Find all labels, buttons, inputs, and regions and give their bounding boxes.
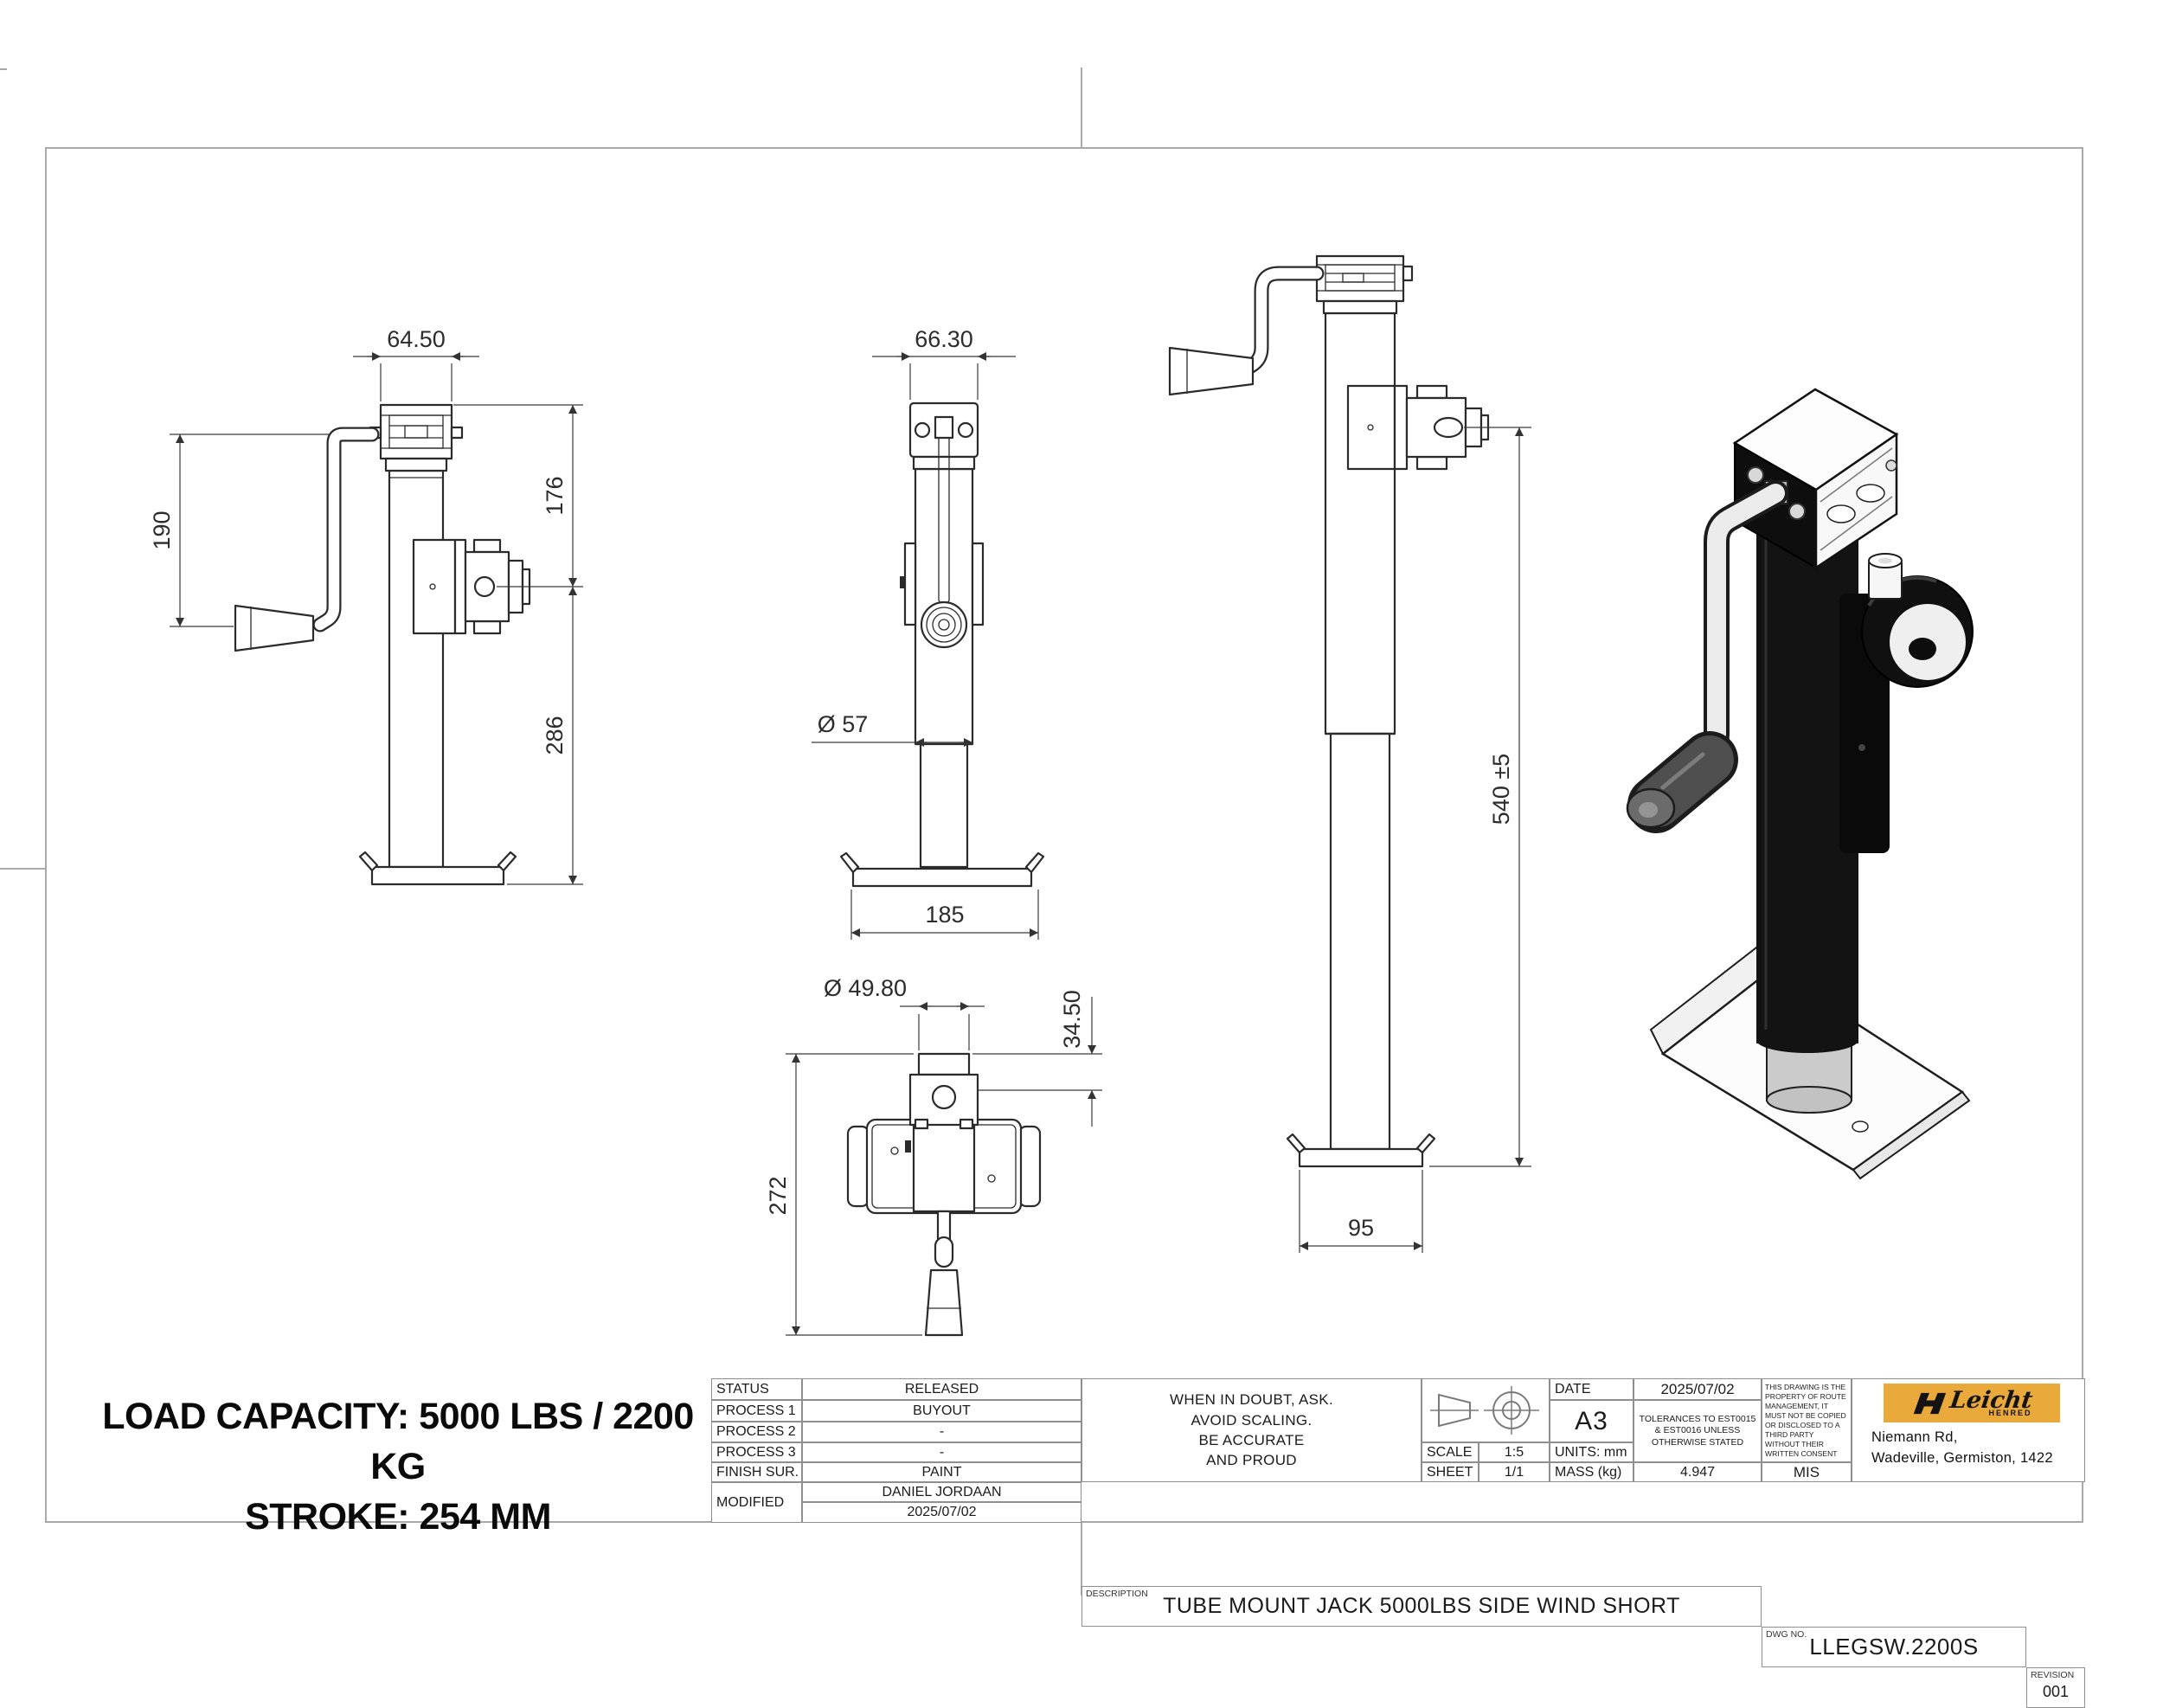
dim-side-upper-height: 176 xyxy=(542,476,568,515)
revision-cell: REVISION 001 xyxy=(2026,1667,2085,1708)
sheet-value: 1/1 xyxy=(1479,1462,1550,1482)
dim-side-lower-height: 286 xyxy=(542,716,568,754)
motto-line-3: BE ACCURATE xyxy=(1198,1430,1304,1450)
drawing-sheet: 64.50 xyxy=(0,0,2163,1672)
process3-value: - xyxy=(802,1442,1081,1462)
view-isometric-render xyxy=(1627,389,1973,1178)
stroke-line: STROKE: 254 MM xyxy=(95,1492,701,1542)
description-label: DESCRIPTION xyxy=(1086,1589,1148,1599)
dim-top-tube-diameter: Ø 49.80 xyxy=(824,975,907,1001)
process1-value: BUYOUT xyxy=(802,1400,1081,1422)
dwg-no-label: DWG NO. xyxy=(1766,1629,1807,1640)
date-value: 2025/07/02 xyxy=(1633,1378,1762,1400)
bracket-bolt xyxy=(1748,467,1763,483)
leicht-henred-logo: Leicht HENRED xyxy=(1884,1384,2060,1422)
view-top: Ø 49.80 34.50 272 xyxy=(765,975,1102,1335)
process2-value: - xyxy=(802,1422,1081,1442)
title-block: STATUS PROCESS 1 PROCESS 2 PROCESS 3 FIN… xyxy=(711,1378,2085,1523)
finish-label: FINISH SUR. xyxy=(711,1462,802,1482)
brand-name: Leicht xyxy=(1948,1389,2034,1412)
sheet-label: SHEET xyxy=(1422,1462,1479,1482)
scale-value: 1:5 xyxy=(1479,1442,1550,1462)
view-front: 66.30 Ø 57 18 xyxy=(812,326,1043,940)
description-cell: DESCRIPTION TUBE MOUNT JACK 5000LBS SIDE… xyxy=(1081,1586,1762,1627)
modified-label: MODIFIED xyxy=(711,1482,802,1523)
modified-date: 2025/07/02 xyxy=(802,1502,1081,1523)
description-value: TUBE MOUNT JACK 5000LBS SIDE WIND SHORT xyxy=(1163,1594,1680,1619)
motto-line-2: AVOID SCALING. xyxy=(1191,1410,1313,1430)
dim-side-handle-length: 190 xyxy=(149,510,175,549)
motto-box: WHEN IN DOUBT, ASK. AVOID SCALING. BE AC… xyxy=(1081,1378,1422,1482)
ownership-note: THIS DRAWING IS THE PROPERTY OF ROUTE MA… xyxy=(1762,1378,1852,1462)
modified-by: DANIEL JORDAAN xyxy=(802,1482,1081,1502)
mass-label: MASS (kg) xyxy=(1550,1462,1633,1482)
process1-label: PROCESS 1 xyxy=(711,1400,802,1422)
process2-label: PROCESS 2 xyxy=(711,1422,802,1442)
company-address-line1: Niemann Rd, xyxy=(1871,1429,1958,1446)
third-angle-projection-icon xyxy=(1428,1384,1543,1437)
dwg-no-value: LLEGSW.2200S xyxy=(1809,1634,1978,1660)
dim-top-pin-offset: 34.50 xyxy=(1059,990,1085,1049)
logo-h-icon xyxy=(1912,1390,1947,1417)
bracket-bolt xyxy=(1789,504,1805,519)
load-capacity-line: LOAD CAPACITY: 5000 LBS / 2200 KG xyxy=(95,1391,701,1492)
dim-side-top-width: 64.50 xyxy=(387,326,446,352)
company-address-line2: Wadeville, Germiston, 1422 xyxy=(1871,1450,2053,1467)
status-value: RELEASED xyxy=(802,1378,1081,1400)
revision-value: 001 xyxy=(2043,1683,2069,1701)
motto-line-1: WHEN IN DOUBT, ASK. xyxy=(1170,1390,1333,1409)
tolerances-note: TOLERANCES TO EST0015 & EST0016 UNLESS O… xyxy=(1633,1400,1762,1462)
scale-label: SCALE xyxy=(1422,1442,1479,1462)
view-side-retracted: 64.50 xyxy=(149,326,583,884)
mis-cell: MIS xyxy=(1762,1462,1852,1482)
load-capacity-note: LOAD CAPACITY: 5000 LBS / 2200 KG STROKE… xyxy=(95,1391,701,1542)
dwg-no-cell: DWG NO. LLEGSW.2200S xyxy=(1762,1627,2026,1667)
finish-value: PAINT xyxy=(802,1462,1081,1482)
units-label: UNITS: mm xyxy=(1550,1442,1633,1462)
dim-front-tube-diameter: Ø 57 xyxy=(818,711,869,737)
paper-size: A3 xyxy=(1550,1400,1633,1442)
projection-symbol-cell xyxy=(1422,1378,1550,1442)
process3-label: PROCESS 3 xyxy=(711,1442,802,1462)
dim-extended-foot-width: 95 xyxy=(1348,1215,1374,1241)
dim-front-foot-width: 185 xyxy=(925,902,964,928)
date-label: DATE xyxy=(1550,1378,1633,1400)
dim-front-top-width: 66.30 xyxy=(915,326,973,352)
motto-line-4: AND PROUD xyxy=(1206,1450,1297,1470)
view-side-extended: 540 ±5 95 xyxy=(1170,256,1531,1253)
mass-value: 4.947 xyxy=(1633,1462,1762,1482)
dim-top-overall-length: 272 xyxy=(765,1176,791,1215)
status-label: STATUS xyxy=(711,1378,802,1400)
dim-extended-overall-height: 540 ±5 xyxy=(1488,754,1514,825)
company-cell: Leicht HENRED Niemann Rd, Wadeville, Ger… xyxy=(1852,1378,2085,1482)
